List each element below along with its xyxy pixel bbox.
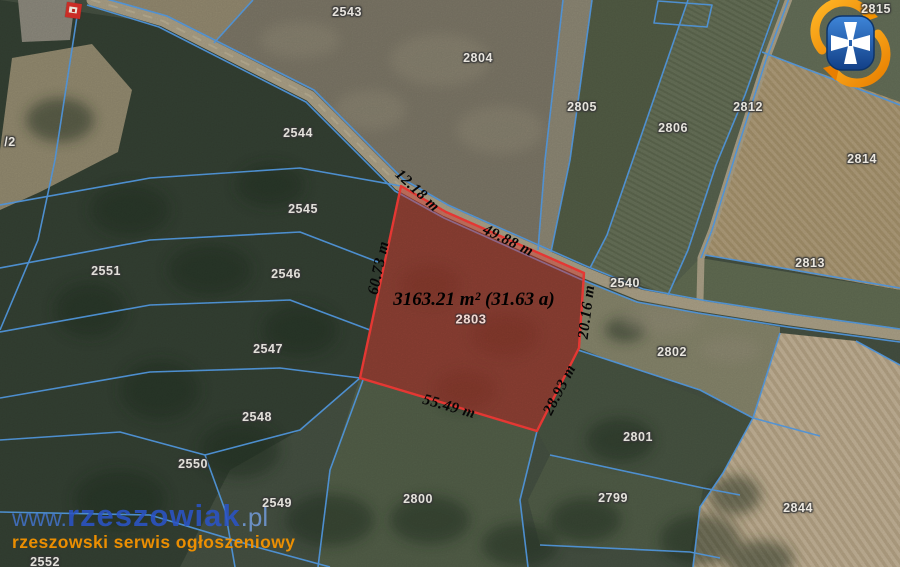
parcel-label-2544: 2544 (283, 126, 313, 140)
building-marker-icon (65, 2, 82, 19)
parcel-label-2547: 2547 (253, 342, 283, 356)
parcel-label-2550: 2550 (178, 457, 208, 471)
parcel-label-2813: 2813 (795, 256, 825, 270)
parcel-label-2548: 2548 (242, 410, 272, 424)
photo-grain (0, 0, 900, 567)
highlighted-parcel-id: 2803 (456, 312, 487, 327)
parcel-label-2805: 2805 (567, 100, 597, 114)
parcel-label-2540: 2540 (610, 276, 640, 290)
area-label: 3163.21 m² (31.63 a) (393, 289, 554, 311)
watermark-www: www. (12, 505, 67, 531)
watermark-tld: .pl (241, 502, 268, 532)
parcel-label-2814: 2814 (847, 152, 877, 166)
parcel-label-2800: 2800 (403, 492, 433, 506)
parcel-label-2552: 2552 (30, 555, 60, 567)
parcel-label-2806: 2806 (658, 121, 688, 135)
satellite-map[interactable] (0, 0, 900, 567)
watermark: www.rzeszowiak.pl rzeszowski serwis ogło… (12, 500, 295, 552)
parcel-label-2545: 2545 (288, 202, 318, 216)
parcel-label-2799: 2799 (598, 491, 628, 505)
watermark-tagline: rzeszowski serwis ogłoszeniowy (12, 534, 295, 552)
parcel-label-2802: 2802 (657, 345, 687, 359)
parcel-label-2551: 2551 (91, 264, 121, 278)
parcel-label-2804: 2804 (463, 51, 493, 65)
parcel-label-2543: 2543 (332, 5, 362, 19)
watermark-name: rzeszowiak (67, 498, 241, 533)
parcel-label-2812: 2812 (733, 100, 763, 114)
parcel-label-2844: 2844 (783, 501, 813, 515)
parcel-label-2801: 2801 (623, 430, 653, 444)
parcel-label-2546: 2546 (271, 267, 301, 281)
map-viewport[interactable]: 2543 2804 2805 2806 2812 2815 2814 2813 … (0, 0, 900, 567)
parcel-label-slash2: /2 (4, 135, 15, 149)
parcel-label-2815: 2815 (861, 2, 891, 16)
